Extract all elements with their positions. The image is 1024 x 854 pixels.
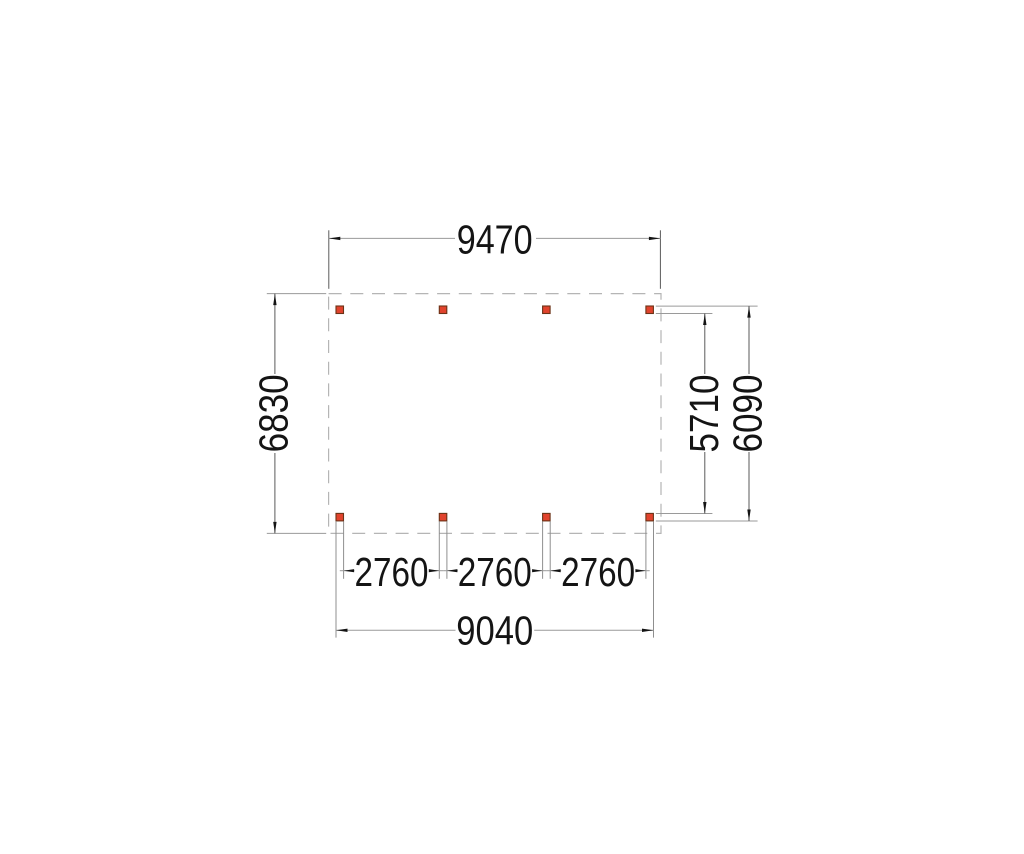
svg-text:2760: 2760	[355, 549, 429, 595]
svg-text:9040: 9040	[456, 608, 533, 654]
svg-text:9470: 9470	[457, 216, 533, 262]
svg-text:2760: 2760	[561, 549, 635, 595]
svg-text:6830: 6830	[251, 374, 297, 452]
svg-text:6090: 6090	[725, 375, 771, 453]
svg-text:2760: 2760	[458, 549, 532, 595]
svg-text:5710: 5710	[681, 375, 727, 453]
